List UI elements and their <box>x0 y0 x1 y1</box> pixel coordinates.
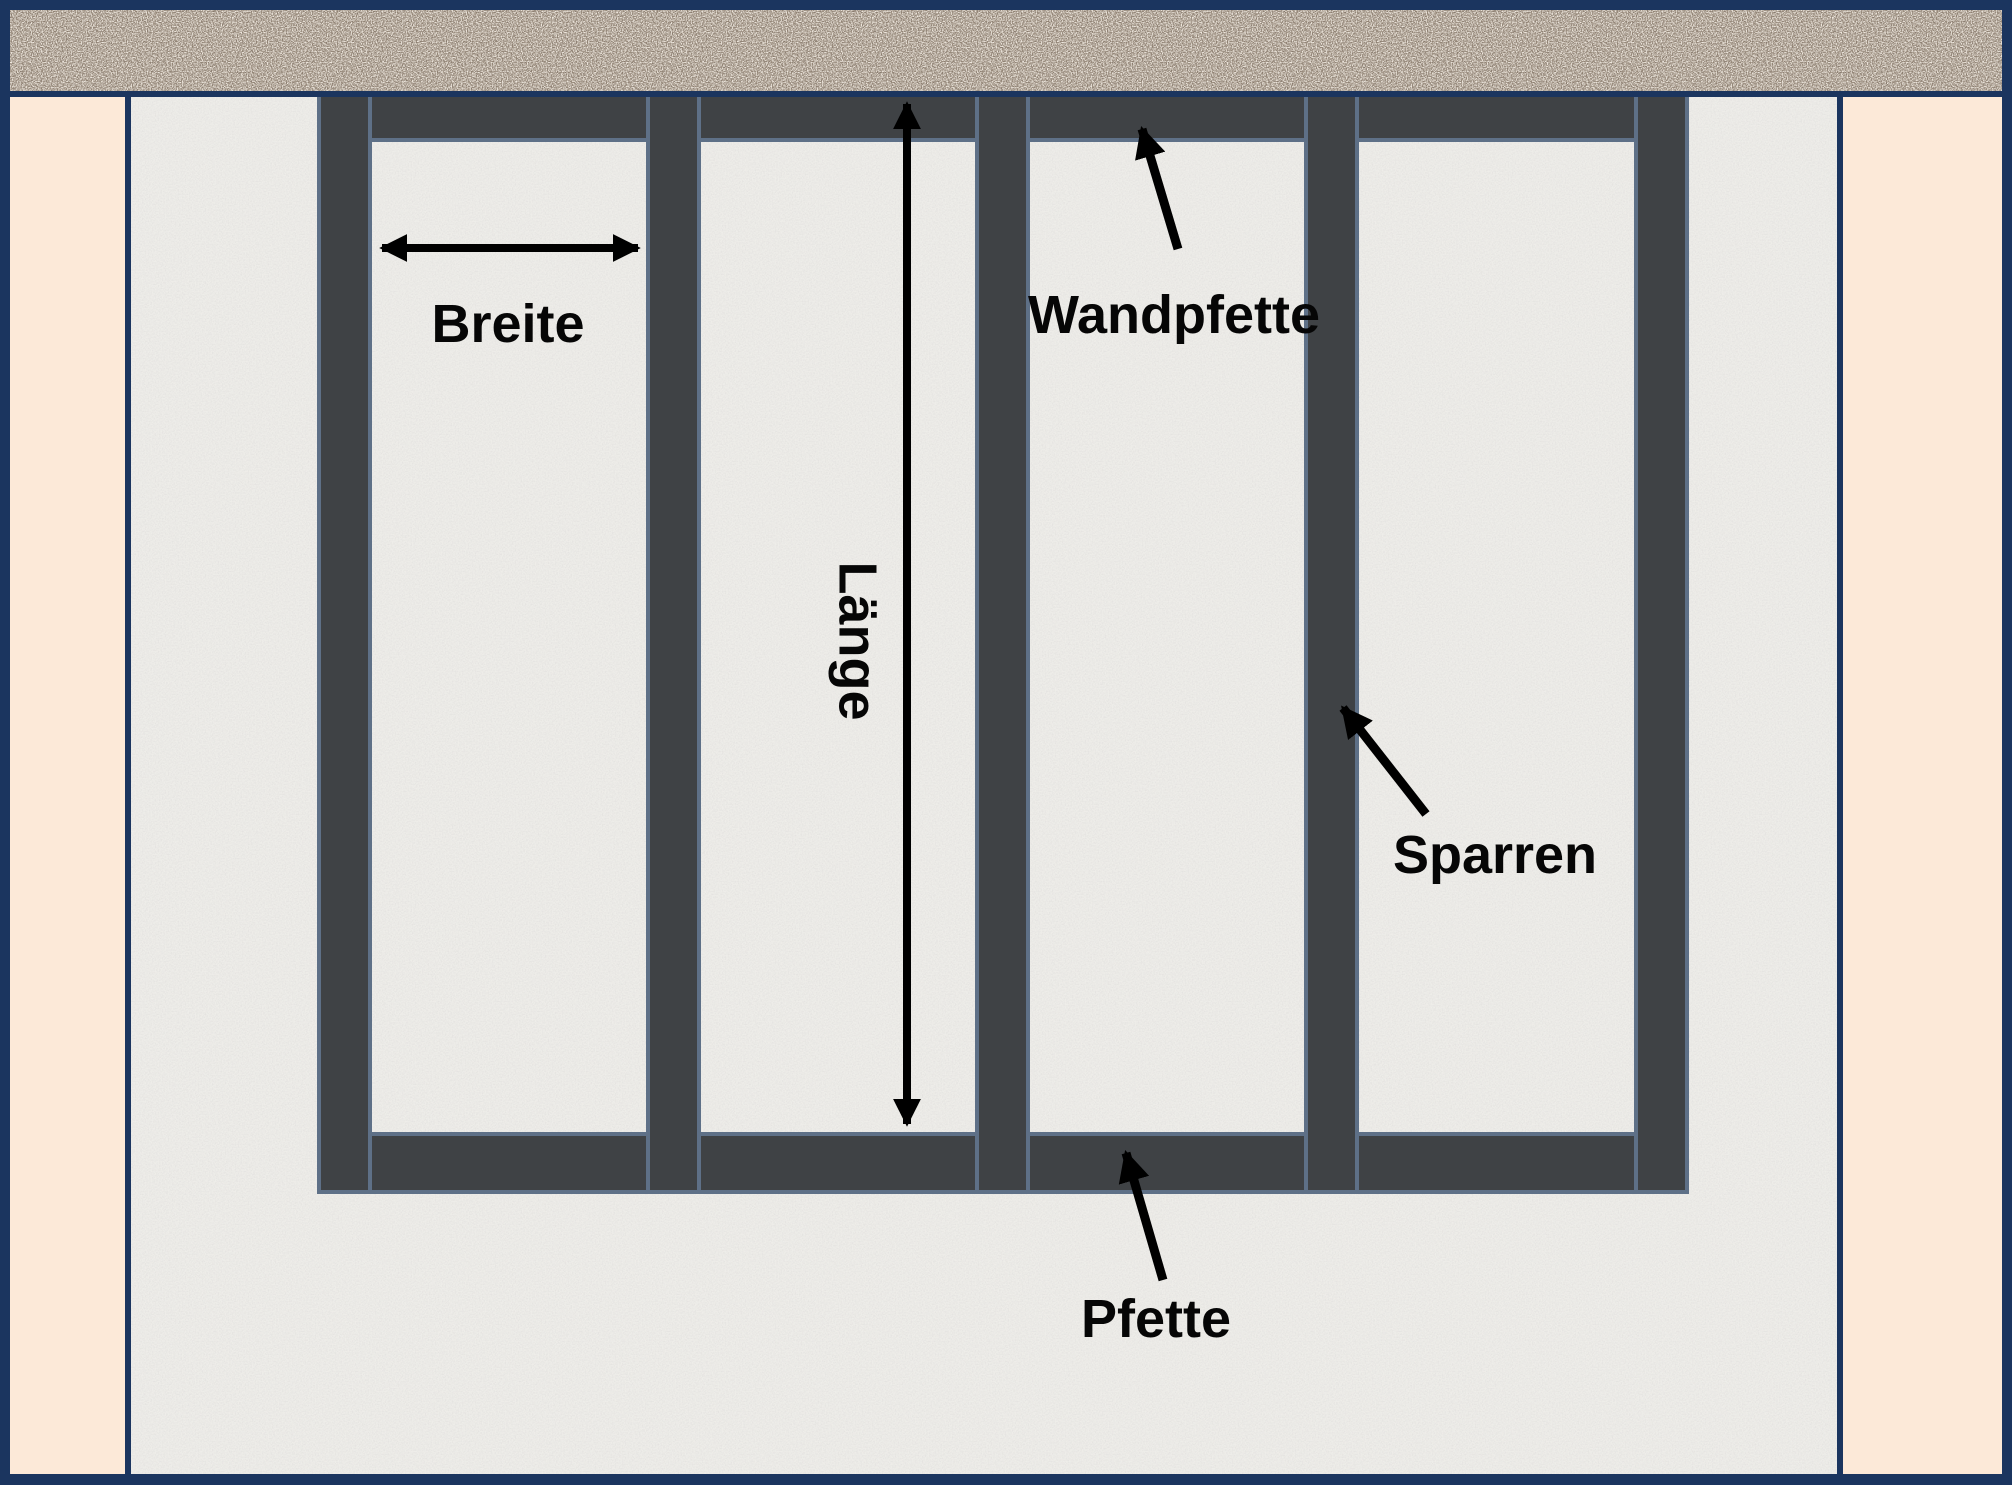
laenge-label: Länge <box>829 561 886 720</box>
sparren-label: Sparren <box>1345 827 1645 884</box>
breite-label: Breite <box>378 296 638 353</box>
wandpfette-label: Wandpfette <box>1014 287 1334 344</box>
sparren-pointer-arrow <box>1343 708 1426 814</box>
annotation-arrows <box>0 0 2012 1485</box>
wandpfette-pointer-arrow <box>1142 129 1178 249</box>
pfette-label: Pfette <box>1006 1291 1306 1348</box>
diagram-canvas: Breite Länge Wandpfette Sparren Pfette <box>0 0 2012 1485</box>
pfette-pointer-arrow <box>1126 1153 1163 1280</box>
